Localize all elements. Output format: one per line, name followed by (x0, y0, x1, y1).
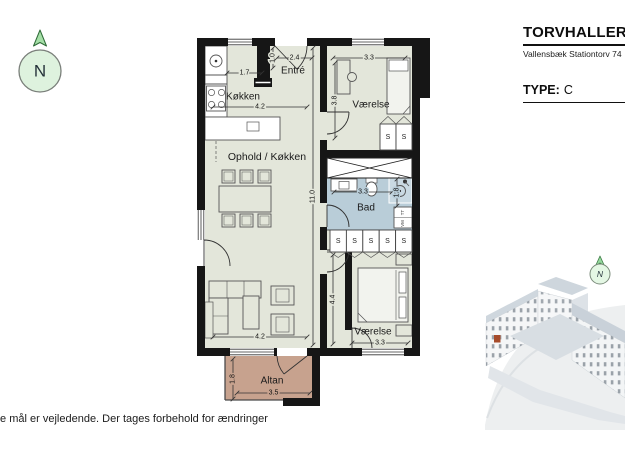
room-label-ophold: Ophold / Køkken (228, 151, 306, 163)
wardrobe-label: S (336, 238, 341, 245)
door-opening (320, 203, 327, 227)
mini-compass-letter: N (597, 269, 604, 279)
wardrobe-label: S (385, 238, 390, 245)
floorplan-sheet: N (0, 0, 625, 460)
dining-chair (258, 170, 271, 183)
dining-chair (240, 170, 253, 183)
compass-arrow-icon (34, 30, 47, 46)
door-opening (345, 330, 352, 348)
room-label-vaerelse1: Værelse (352, 100, 390, 111)
pillow (389, 60, 408, 71)
wardrobe-label: S (352, 238, 357, 245)
compass-letter: N (34, 62, 46, 81)
room-label-vaerelse2: Værelse (354, 327, 392, 338)
balcony-door-opening (277, 348, 307, 356)
wardrobe-label: S (401, 238, 406, 245)
wardrobe-label: S (369, 238, 374, 245)
sideboard (205, 302, 213, 338)
desk-chair (348, 73, 357, 82)
door-opening (320, 250, 327, 274)
compass: N (19, 30, 61, 92)
unit-marker (494, 335, 501, 343)
wall-interior (320, 46, 327, 348)
dimension-label: 2.4 (290, 55, 300, 62)
type-row: TYPE:C (523, 83, 625, 103)
building-render: N (485, 256, 625, 430)
washer-label: VM (400, 220, 405, 227)
dimension-label: 1.0 (270, 53, 277, 63)
sofa (209, 281, 261, 298)
wall (197, 38, 205, 356)
mini-compass: N (590, 256, 610, 284)
type-value: C (564, 83, 573, 97)
kitchen-island (205, 117, 280, 140)
building-roof (538, 277, 588, 295)
coffee-table (243, 296, 259, 329)
door-opening (320, 112, 327, 140)
room-label-entre: Entré (281, 66, 305, 77)
dimension-label: 4.2 (255, 104, 265, 111)
title-block: TORVHALLERNE Vallensbæk Stationtorv 74 T… (523, 24, 625, 103)
dimension-label: 3.5 (269, 390, 279, 397)
wardrobe-label: S (386, 134, 391, 141)
dryer-label: TT (400, 210, 405, 216)
entry-opening (275, 38, 307, 46)
dining-chair (222, 214, 235, 227)
balcony-wall (283, 398, 320, 406)
pillow (399, 297, 406, 318)
dimension-label: 4.4 (330, 295, 337, 305)
nightstand (396, 325, 412, 336)
dimension-label: 1.8 (230, 374, 237, 384)
dining-chair (240, 214, 253, 227)
dining-chair (258, 214, 271, 227)
type-label: TYPE: (523, 83, 560, 97)
disclaimer-text: te mål er vejledende. Der tages forbehol… (0, 413, 268, 425)
sink-drain-icon (215, 60, 218, 63)
room-label-bad: Bad (357, 203, 375, 214)
project-title: TORVHALLERNE (523, 24, 625, 46)
wall-interior (327, 150, 412, 158)
room-label-altan: Altan (261, 376, 284, 387)
project-address: Vallensbæk Stationtorv 74 (523, 49, 625, 59)
dimension-label: 1.7 (240, 70, 250, 77)
wall (412, 38, 430, 98)
nightstand (396, 254, 412, 265)
dimension-label: 3.3 (358, 189, 368, 196)
dining-table (219, 186, 271, 212)
dimension-label: 11.0 (310, 190, 317, 203)
dimension-label: 3.3 (364, 55, 374, 62)
dimension-label: 3.3 (375, 340, 385, 347)
pillow (399, 272, 406, 293)
dining-chair (222, 170, 235, 183)
wardrobe-label: S (402, 134, 407, 141)
shaft (327, 158, 412, 178)
dimension-label: 3.8 (332, 96, 339, 106)
room-label-kokken: Køkken (226, 92, 260, 103)
dimension-label: 4.2 (255, 334, 265, 341)
dimension-label: 1.8 (394, 188, 401, 198)
floorplan: TT VM (197, 38, 430, 406)
